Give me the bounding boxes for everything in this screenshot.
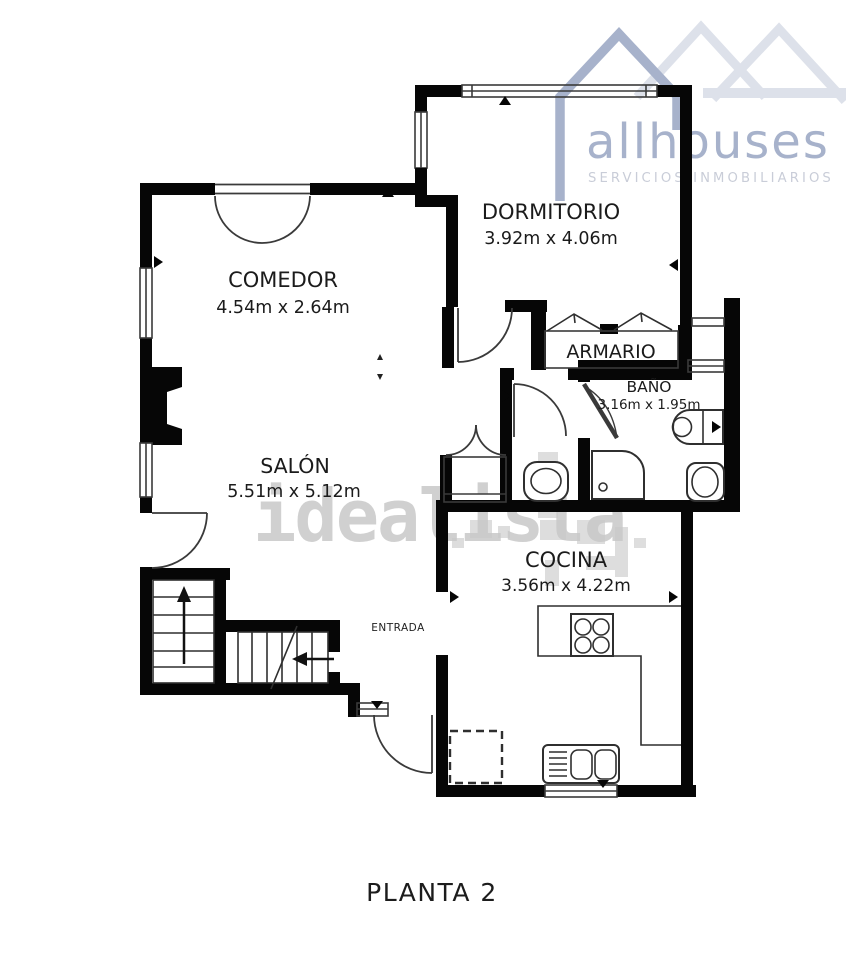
room-label-dormitorio: DORMITORIO — [482, 200, 620, 224]
room-label-entrada: ENTRADA — [371, 622, 425, 634]
brand-tagline: SERVICIOS INMOBILIARIOS — [588, 171, 834, 186]
room-dims-bano: 3.16m x 1.95m — [598, 397, 701, 413]
room-dims-dormitorio: 3.92m x 4.06m — [484, 229, 618, 249]
stove — [571, 614, 613, 656]
room-dims-comedor: 4.54m x 2.64m — [216, 298, 350, 318]
room-label-armario: ARMARIO — [566, 341, 655, 363]
room-label-cocina: COCINA — [525, 548, 608, 572]
shower — [592, 451, 644, 499]
room-armario: ARMARIO — [566, 341, 655, 363]
floor-title: PLANTA 2 — [366, 878, 498, 907]
kitchen-sink — [543, 745, 619, 783]
room-label-comedor: COMEDOR — [228, 268, 338, 292]
floorplan-canvas: allhouses SERVICIOS INMOBILIARIOS ideali… — [0, 0, 846, 960]
brand-name: allhouses — [586, 114, 830, 170]
room-label-salon: SALÓN — [260, 453, 330, 478]
bano-toilet — [687, 463, 724, 501]
room-dims-salon: 5.51m x 5.12m — [227, 482, 361, 502]
fireplace — [152, 367, 182, 445]
room-label-bano: BAÑO — [626, 377, 671, 396]
floorplan-page: allhouses SERVICIOS INMOBILIARIOS ideali… — [0, 0, 846, 960]
wc-toilet — [524, 462, 568, 501]
room-dims-cocina: 3.56m x 4.22m — [501, 576, 631, 596]
